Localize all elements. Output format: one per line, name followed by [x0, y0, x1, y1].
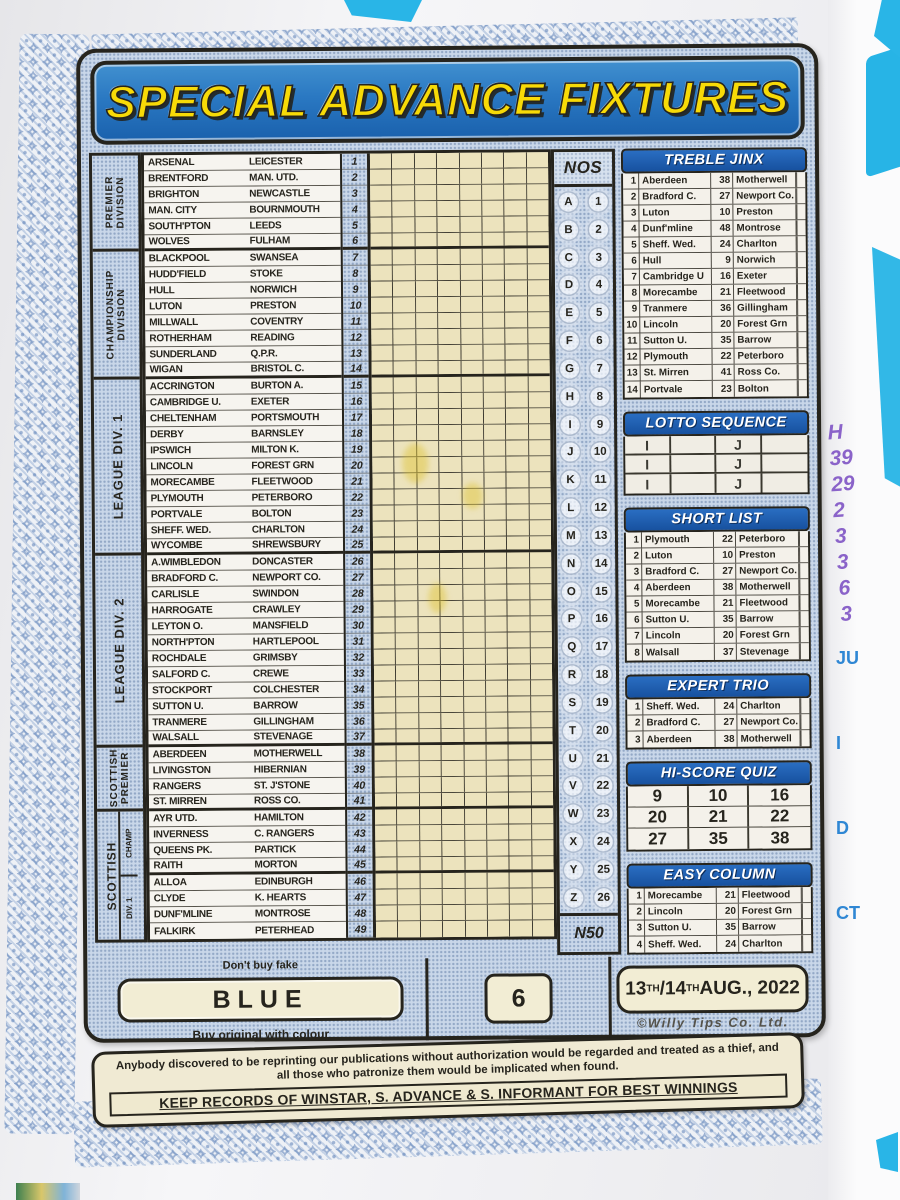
fixture-number: 21 — [344, 474, 369, 490]
home-team: TRANMERE — [148, 717, 253, 729]
grid-cell — [370, 169, 392, 184]
grid-cell — [506, 360, 528, 373]
handwritten-number: 2 — [832, 496, 897, 522]
fixture-row: NORTH'PTONHARTLEPOOL — [148, 634, 344, 652]
grid-cell — [440, 505, 462, 520]
tip-fixture-number: 27 — [714, 564, 736, 579]
tip-mark-cell — [799, 531, 808, 546]
tip-mark-cell — [799, 579, 808, 594]
tip-mark-cell — [799, 595, 808, 610]
grid-cell — [397, 777, 419, 792]
grid-cell — [482, 185, 504, 200]
tip-row: 9Tranmere36Gillingham — [624, 300, 806, 317]
grid-row — [375, 856, 553, 873]
grid-cell — [393, 265, 415, 280]
grid-cell — [394, 361, 416, 374]
home-team: STOCKPORT — [148, 685, 253, 697]
fixture-number: 49 — [348, 922, 373, 938]
tip-away-team: Ross Co. — [735, 364, 798, 379]
tip-fixture-number: 20 — [717, 904, 739, 919]
tip-fixture-number: 35 — [717, 920, 739, 935]
grid-cell — [397, 761, 419, 776]
nos-number: 11 — [589, 469, 611, 491]
home-team: DERBY — [146, 429, 251, 441]
tip-home-team: Portvale — [641, 381, 713, 398]
grid-cell — [420, 873, 442, 888]
tip-row: 2Luton10Preston — [626, 547, 808, 564]
grid-cell — [418, 633, 440, 648]
grid-row — [372, 456, 550, 473]
grid-cell — [398, 857, 420, 870]
division-block: CHAMPIONSHIPDIVISION — [93, 251, 140, 379]
grid-cell — [392, 169, 414, 184]
fixture-row: ACCRINGTONBURTON A. — [146, 378, 342, 396]
grid-row — [373, 600, 551, 617]
grid-cell — [530, 568, 551, 583]
grid-cell — [419, 745, 441, 760]
grid-row — [371, 296, 549, 313]
nos-number: 20 — [591, 719, 613, 741]
grid-cell — [438, 313, 460, 328]
tip-mark-cell — [802, 887, 811, 902]
tip-rank: 3 — [626, 564, 642, 579]
fixture-number: 18 — [344, 426, 369, 442]
teams-column: ARSENALLEICESTERBRENTFORDMAN. UTD.BRIGHT… — [144, 154, 346, 940]
tip-rank: 10 — [624, 318, 640, 333]
grid-row — [373, 520, 551, 537]
grid-cell — [465, 857, 487, 870]
grid-cell — [485, 569, 507, 584]
fixture-number: 12 — [343, 330, 368, 346]
tip-home-team: Dunf'mline — [639, 221, 711, 237]
away-team: MAN. UTD. — [249, 172, 340, 184]
nos-pair: P16 — [561, 608, 613, 630]
nos-pair: V22 — [562, 775, 614, 797]
tip-rank: 6 — [624, 254, 640, 269]
panel-title: HI-SCORE QUIZ — [626, 760, 812, 786]
away-team: HARTLEPOOL — [253, 636, 344, 648]
tip-home-team: Aberdeen — [639, 173, 711, 189]
panel-title: EASY COLUMN — [627, 862, 813, 888]
grid-row — [372, 408, 550, 425]
away-team: PETERBORO — [252, 492, 343, 504]
grid-row — [375, 744, 553, 761]
grid-cell — [532, 888, 553, 903]
grid-cell — [420, 889, 442, 904]
tip-away-team: Montrose — [733, 220, 796, 235]
away-team: C. RANGERS — [254, 828, 345, 840]
division-sub-block: DIV. 1 — [120, 876, 137, 939]
away-team: CREWE — [253, 668, 344, 680]
grid-cell — [506, 376, 528, 391]
grid-cell — [508, 600, 530, 615]
grid-cell — [460, 201, 482, 216]
tip-home-team: Plymouth — [640, 349, 712, 365]
away-team: COVENTRY — [250, 316, 341, 328]
grid-cell — [508, 680, 530, 695]
away-team: PARTICK — [254, 844, 345, 856]
home-team: INVERNESS — [149, 829, 254, 841]
grid-cell — [461, 297, 483, 312]
fixture-row: WIGANBRISTOL C. — [146, 362, 342, 380]
grid-cell — [398, 841, 420, 856]
nos-letter: W — [562, 803, 584, 825]
panel-lotto-sequence: LOTTO SEQUENCEIJIJIJ — [623, 410, 810, 495]
tip-home-team: Cambridge U — [640, 269, 712, 285]
grid-cell — [529, 520, 550, 535]
nos-number: 4 — [588, 274, 610, 296]
grid-cell — [374, 713, 396, 728]
grid-cell — [488, 889, 510, 904]
fixtures-coupon: SPECIAL ADVANCE FIXTURES PREMIERDIVISION… — [76, 43, 826, 1043]
grid-cell — [465, 921, 487, 937]
fixture-number: 4 — [342, 202, 367, 218]
tip-away-team: Norwich — [734, 252, 797, 267]
panel-title: LOTTO SEQUENCE — [623, 410, 809, 436]
tip-row: 5Morecambe21Fleetwood — [626, 595, 808, 612]
grid-row — [372, 360, 550, 377]
grid-cell — [463, 553, 485, 568]
panel-hi-score-quiz: HI-SCORE QUIZ91016202122273538 — [626, 760, 813, 851]
fixture-row: AYR UTD.HAMILTON — [149, 810, 345, 828]
grid-cell — [441, 681, 463, 696]
grid-cell — [461, 393, 483, 408]
grid-cell — [373, 489, 395, 504]
away-team: K. HEARTS — [255, 892, 346, 904]
nos-pair: Q17 — [561, 636, 613, 658]
grid-cell — [530, 600, 551, 615]
nos-letter: R — [561, 664, 583, 686]
nos-number: 18 — [591, 664, 613, 686]
quiz-number: 20 — [628, 807, 689, 827]
grid-cell — [395, 489, 417, 504]
division-block: LEAGUE DIV. 1 — [94, 379, 141, 555]
coupon-footer: Don't buy fake BLUE Buy original with co… — [95, 955, 814, 1043]
company-name: ©Willy Tips Co. Ltd. — [637, 1014, 789, 1030]
nos-number: 26 — [593, 886, 615, 908]
tip-rank: 11 — [624, 334, 640, 349]
fixture-row: INVERNESSC. RANGERS — [149, 826, 345, 844]
away-team: CRAWLEY — [252, 604, 343, 616]
grid-cell — [439, 425, 461, 440]
grid-cell — [485, 617, 507, 632]
panel-title: TREBLE JINX — [621, 147, 807, 173]
grid-cell — [486, 665, 508, 680]
tip-fixture-number: 16 — [712, 269, 734, 284]
fixture-row: ALLOAEDINBURGH — [150, 874, 346, 892]
tip-row: 13St. Mirren41Ross Co. — [625, 364, 807, 381]
grid-cell — [438, 233, 460, 246]
lotto-cell: I — [625, 474, 671, 493]
grid-cell — [396, 649, 418, 664]
tip-rank: 7 — [624, 270, 640, 285]
tip-rank: 7 — [627, 628, 643, 643]
fixture-number: 33 — [346, 666, 371, 682]
grid-cell — [393, 201, 415, 216]
fixture-number: 23 — [345, 506, 370, 522]
grid-cell — [372, 425, 394, 440]
tip-fixture-number: 22 — [712, 349, 734, 364]
tip-fixture-number: 21 — [712, 285, 734, 300]
grid-cell — [374, 617, 396, 632]
grid-row — [374, 712, 552, 729]
grid-cell — [440, 473, 462, 488]
nos-number: 2 — [587, 219, 609, 241]
tip-mark-cell — [796, 220, 805, 235]
tip-rank: 14 — [625, 382, 641, 398]
lotto-cell: J — [716, 455, 762, 472]
division-block: SCOTTISHPREMIER — [97, 747, 144, 811]
fixture-row: LINCOLNFOREST GRN — [146, 458, 342, 476]
grid-cell — [442, 729, 464, 742]
away-team: GILLINGHAM — [253, 716, 344, 728]
grid-row — [373, 504, 551, 521]
grid-cell — [415, 201, 437, 216]
tip-row: 4Dunf'mline48Montrose — [623, 220, 805, 237]
nos-pair: M13 — [560, 525, 612, 547]
tip-mark-cell — [797, 236, 806, 251]
tip-mark-cell — [802, 935, 811, 951]
fixture-row: CLYDEK. HEARTS — [150, 890, 346, 908]
grid-cell — [484, 393, 506, 408]
grid-cell — [485, 505, 507, 520]
background-paper-fragment — [344, 0, 422, 22]
nos-letter: I — [559, 414, 581, 436]
home-team: LEYTON O. — [148, 621, 253, 633]
panel-body: 1Morecambe21Fleetwood2Lincoln20Forest Gr… — [627, 887, 814, 954]
grid-cell — [528, 344, 549, 359]
tip-home-team: Bradford C. — [643, 715, 715, 731]
grid-cell — [485, 521, 507, 536]
grid-cell — [508, 664, 530, 679]
fixture-row: BRIGHTONNEWCASTLE — [144, 186, 340, 204]
fixture-row: LEYTON O.MANSFIELD — [148, 618, 344, 636]
grid-cell — [416, 361, 438, 374]
fixture-row: CHELTENHAMPORTSMOUTH — [146, 410, 342, 428]
grid-cell — [459, 153, 481, 168]
tip-rank: 2 — [623, 190, 639, 205]
tip-row: 14Portvale23Bolton — [625, 380, 807, 397]
tip-row: 7Lincoln20Forest Grn — [627, 627, 809, 644]
grid-cell — [371, 233, 393, 246]
handwritten-number: 3 — [840, 600, 900, 626]
grid-cell — [486, 649, 508, 664]
grid-cell — [394, 377, 416, 392]
grid-row — [370, 216, 548, 233]
grid-row — [371, 248, 549, 265]
away-team: FULHAM — [250, 235, 341, 247]
fixture-number: 48 — [348, 906, 373, 922]
grid-cell — [393, 297, 415, 312]
tip-rank: 8 — [627, 644, 643, 660]
division-label: SCOTTISH — [109, 749, 120, 808]
grid-cell — [393, 281, 415, 296]
home-team: HARROGATE — [147, 605, 252, 617]
tip-row: 1Aberdeen38Motherwell — [623, 172, 805, 189]
fixtures-table: ARSENALLEICESTERBRENTFORDMAN. UTD.BRIGHT… — [141, 149, 557, 942]
away-team: MONTROSE — [255, 908, 346, 920]
grid-cell — [440, 569, 462, 584]
home-team: LUTON — [145, 301, 250, 313]
grid-cell — [375, 841, 397, 856]
grid-cell — [398, 889, 420, 904]
tip-rank: 9 — [624, 302, 640, 317]
grid-cell — [371, 297, 393, 312]
grid-cell — [529, 504, 550, 519]
background-print-shape — [866, 38, 900, 177]
tip-home-team: Lincoln — [645, 904, 717, 920]
handwritten-number: 3 — [836, 548, 900, 574]
grid-cell — [505, 216, 527, 231]
grid-cell — [509, 776, 531, 791]
tip-away-team: Newport Co. — [736, 563, 799, 578]
lotto-cell — [762, 435, 808, 452]
away-team: ROSS CO. — [254, 795, 345, 807]
grid-cell — [487, 873, 509, 888]
home-team: WOLVES — [145, 236, 250, 248]
tip-fixture-number: 48 — [711, 221, 733, 236]
grid-cell — [396, 601, 418, 616]
tip-home-team: Hull — [640, 253, 712, 269]
grid-cell — [419, 697, 441, 712]
grid-cell — [443, 873, 465, 888]
fixture-number: 39 — [347, 762, 372, 778]
grid-cell — [482, 153, 504, 168]
grid-cell — [437, 153, 459, 168]
quiz-number: 16 — [749, 785, 810, 805]
nos-letter: E — [558, 302, 580, 324]
tip-away-team: Peterboro — [734, 348, 797, 363]
fixture-number: 40 — [347, 778, 372, 794]
grid-cell — [484, 489, 506, 504]
grid-row — [373, 488, 551, 505]
grid-row — [371, 312, 549, 329]
grid-row — [374, 664, 552, 681]
grid-cell — [483, 313, 505, 328]
grid-cell — [532, 840, 553, 855]
tip-mark-cell — [796, 172, 805, 187]
fixture-number: 15 — [344, 378, 369, 394]
tip-home-team: Walsall — [643, 644, 715, 661]
grid-cell — [394, 425, 416, 440]
nos-letter: K — [559, 469, 581, 491]
away-team: FLEETWOOD — [251, 476, 342, 488]
grid-cell — [460, 281, 482, 296]
grid-cell — [371, 281, 393, 296]
tip-away-team: Fleetwood — [739, 887, 802, 902]
tip-away-team: Newport Co. — [733, 188, 796, 203]
tip-mark-cell — [797, 284, 806, 299]
print-fragment: I — [836, 733, 896, 754]
grid-cell — [510, 856, 532, 869]
grid-row — [376, 872, 554, 889]
nos-number: 23 — [592, 803, 614, 825]
lotto-cell: J — [716, 436, 762, 453]
away-team: GRIMSBY — [253, 652, 344, 664]
fixture-number: 8 — [343, 266, 368, 282]
grid-cell — [419, 729, 441, 742]
nos-number: 17 — [591, 636, 613, 658]
tip-mark-cell — [798, 364, 807, 379]
underlying-page: H392923363 JUIDCT — [828, 0, 900, 1200]
fixture-row: PORTVALEBOLTON — [147, 506, 343, 524]
tip-mark-cell — [800, 730, 809, 746]
grid-cell — [486, 633, 508, 648]
grid-row — [375, 808, 553, 825]
grid-row — [371, 280, 549, 297]
grid-row — [374, 680, 552, 697]
panel-treble-jinx: TREBLE JINX1Aberdeen38Motherwell2Bradfor… — [621, 147, 809, 399]
nos-letter: Z — [563, 887, 585, 909]
tip-fixture-number: 24 — [712, 237, 734, 252]
grid-cell — [528, 392, 549, 407]
grid-cell — [438, 329, 460, 344]
grid-cell — [529, 472, 550, 487]
fixture-number: 34 — [346, 682, 371, 698]
grid-cell — [375, 745, 397, 760]
grid-row — [372, 472, 550, 489]
grid-cell — [373, 537, 395, 550]
nos-pair: R18 — [561, 664, 613, 686]
quiz-row: 273538 — [628, 827, 810, 849]
fixture-number: 9 — [343, 282, 368, 298]
nos-number: 8 — [589, 386, 611, 408]
nos-pair: I9 — [559, 413, 611, 435]
nos-number: 6 — [588, 330, 610, 352]
nos-number: 1 — [587, 191, 609, 213]
grid-cell — [417, 505, 439, 520]
grid-cell — [507, 568, 529, 583]
grid-cell — [416, 265, 438, 280]
grid-cell — [374, 681, 396, 696]
grid-cell — [440, 537, 462, 550]
tip-home-team: Morecambe — [645, 888, 717, 904]
grid-cell — [397, 745, 419, 760]
fixture-number: 19 — [344, 442, 369, 458]
home-team: SALFORD C. — [148, 669, 253, 681]
grid-cell — [373, 601, 395, 616]
grid-cell — [509, 728, 531, 741]
grid-cell — [531, 728, 552, 741]
grid-cell — [398, 921, 420, 937]
tip-mark-cell — [798, 380, 807, 396]
grid-cell — [529, 456, 550, 471]
home-team: BRADFORD C. — [147, 573, 252, 585]
grid-cell — [464, 745, 486, 760]
nos-pair: C3 — [558, 246, 610, 268]
fixture-row: RANGERSST. J'STONE — [149, 778, 345, 796]
panel-title: SHORT LIST — [624, 506, 810, 532]
grid-cell — [460, 185, 482, 200]
tip-away-team: Newport Co. — [737, 714, 800, 729]
grid-cell — [527, 216, 548, 231]
grid-cell — [508, 616, 530, 631]
tip-fixture-number: 24 — [717, 936, 739, 952]
grid-row — [373, 584, 551, 601]
tip-mark-cell — [800, 627, 809, 642]
away-team: MANSFIELD — [253, 620, 344, 632]
tip-away-team: Charlton — [739, 935, 802, 951]
grid-cell — [393, 217, 415, 232]
grid-cell — [441, 649, 463, 664]
fixture-row: TRANMEREGILLINGHAM — [148, 714, 344, 732]
fixture-number: 2 — [342, 170, 367, 186]
away-team: SHREWSBURY — [252, 539, 343, 551]
grid-cell — [443, 889, 465, 904]
grid-cell — [531, 760, 552, 775]
grid-cell — [462, 521, 484, 536]
nos-pair: O15 — [560, 580, 612, 602]
